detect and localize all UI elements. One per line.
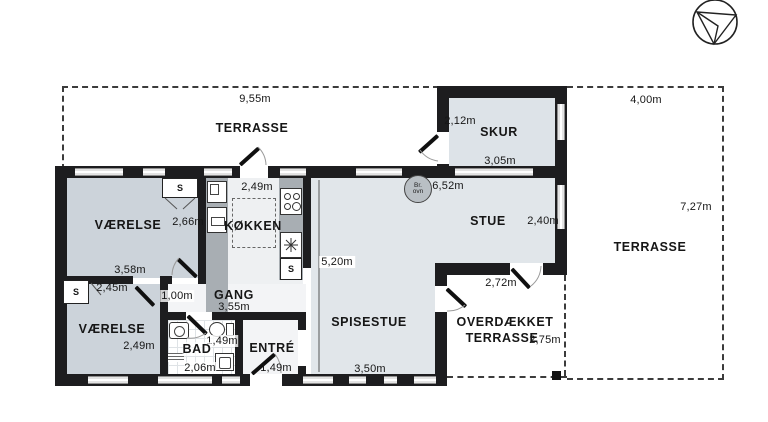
dishwasher-icon	[211, 217, 225, 226]
north-arrow-icon	[684, 0, 746, 54]
room-spisestue-floor	[311, 178, 435, 374]
wall-hall-top-b	[160, 276, 172, 284]
window	[356, 168, 402, 176]
window	[384, 376, 397, 384]
window	[75, 168, 123, 176]
window	[143, 168, 165, 176]
window	[280, 168, 306, 176]
window	[158, 376, 212, 384]
wood-stove: Br. ovn	[404, 175, 432, 203]
dim-spisestue-depth: 5,20m	[319, 256, 355, 268]
dim-koekken-w: 2,49m	[241, 181, 273, 193]
dim-skur-h: 2,12m	[444, 115, 476, 127]
dim-vaerelse1-h: 2,66m	[172, 216, 204, 228]
door-opening	[240, 166, 268, 178]
wall-hall-top-c	[198, 276, 206, 284]
label-gang: GANG	[214, 288, 254, 302]
window	[303, 376, 333, 384]
terrace-right-boundary	[567, 86, 724, 380]
burner-icon	[284, 203, 291, 210]
window	[557, 104, 565, 140]
dim-gang-w: 3,55m	[218, 301, 250, 313]
window	[222, 376, 240, 384]
washer-door-icon	[219, 357, 231, 369]
burner-icon	[293, 193, 300, 200]
window	[349, 376, 366, 384]
wall-spisestue-right	[435, 263, 447, 386]
window	[455, 168, 533, 176]
label-spisestue: SPISESTUE	[331, 315, 407, 329]
dim-skur-w: 3,05m	[484, 155, 516, 167]
closet-label: S	[73, 287, 79, 297]
dim-overdaekket-h: 2,75m	[529, 334, 561, 346]
cabinet-label: S	[288, 264, 294, 274]
washing-machine	[215, 353, 234, 371]
closet-vaerelse1: S	[162, 178, 198, 198]
closet-label: S	[177, 183, 183, 193]
label-vaerelse2: VÆRELSE	[79, 322, 146, 336]
dim-terrasse-right-w: 4,00m	[630, 94, 662, 106]
wall-vaerelse1-right	[198, 178, 206, 282]
wall-gang-bottom-b	[212, 312, 306, 320]
burner-icon	[292, 202, 301, 211]
floor-plan: S S S Br. ovn	[0, 0, 768, 422]
basin-icon	[174, 326, 185, 337]
dim-bad-w: 2,06m	[184, 362, 216, 374]
window	[414, 376, 436, 384]
dim-overdaekket-w: 2,72m	[485, 277, 517, 289]
window	[88, 376, 128, 384]
dim-stue-w: 6,52m	[432, 180, 464, 192]
dim-vaerelse2-w: 2,45m	[96, 282, 128, 294]
wall-koekken-stue-divider	[303, 178, 311, 268]
wall-skur-top	[437, 86, 567, 98]
wall-entre-right-b	[298, 366, 306, 374]
label-overdaekket-2: TERRASSE	[466, 331, 539, 345]
dim-vaerelse2-h: 2,49m	[123, 340, 155, 352]
bathroom-sink	[169, 322, 189, 339]
faucet-icon	[210, 184, 219, 195]
dim-spisestue-w: 3,50m	[354, 363, 386, 375]
stove	[280, 188, 302, 215]
burner-icon	[284, 193, 291, 200]
closet-vaerelse2: S	[63, 280, 89, 304]
terrace-post	[552, 371, 561, 380]
label-terrasse-top: TERRASSE	[216, 121, 289, 135]
fridge	[280, 232, 302, 258]
wall-entre-right-a	[298, 312, 306, 330]
dim-entre-door: 1,49m	[260, 362, 292, 374]
dim-terrasse-right-h: 7,27m	[680, 201, 712, 213]
stove-label-2: ovn	[413, 189, 423, 196]
dim-terrasse-top: 9,55m	[239, 93, 271, 105]
label-koekken: KØKKEN	[224, 219, 282, 233]
dim-gang-side: 1,00m	[160, 290, 194, 302]
label-bad: BAD	[183, 342, 212, 356]
window	[204, 168, 232, 176]
dim-stue-h: 2,40m	[527, 215, 559, 227]
dim-vaerelse1-w: 3,58m	[114, 264, 146, 276]
label-skur: SKUR	[480, 125, 518, 139]
label-terrasse-right: TERRASSE	[614, 240, 687, 254]
label-entre: ENTRÉ	[249, 341, 294, 355]
label-stue: STUE	[470, 214, 506, 228]
label-vaerelse1: VÆRELSE	[95, 218, 162, 232]
door-opening	[250, 374, 282, 386]
kitchen-cabinet: S	[280, 258, 302, 280]
wall-stue-bottom	[435, 263, 567, 275]
terrace-divider-dashed	[564, 275, 568, 376]
kitchen-sink	[207, 181, 227, 203]
label-overdaekket-1: OVERDÆKKET	[457, 315, 554, 329]
wall-gang-bottom-a	[160, 312, 186, 320]
snowflake-icon	[281, 233, 301, 257]
